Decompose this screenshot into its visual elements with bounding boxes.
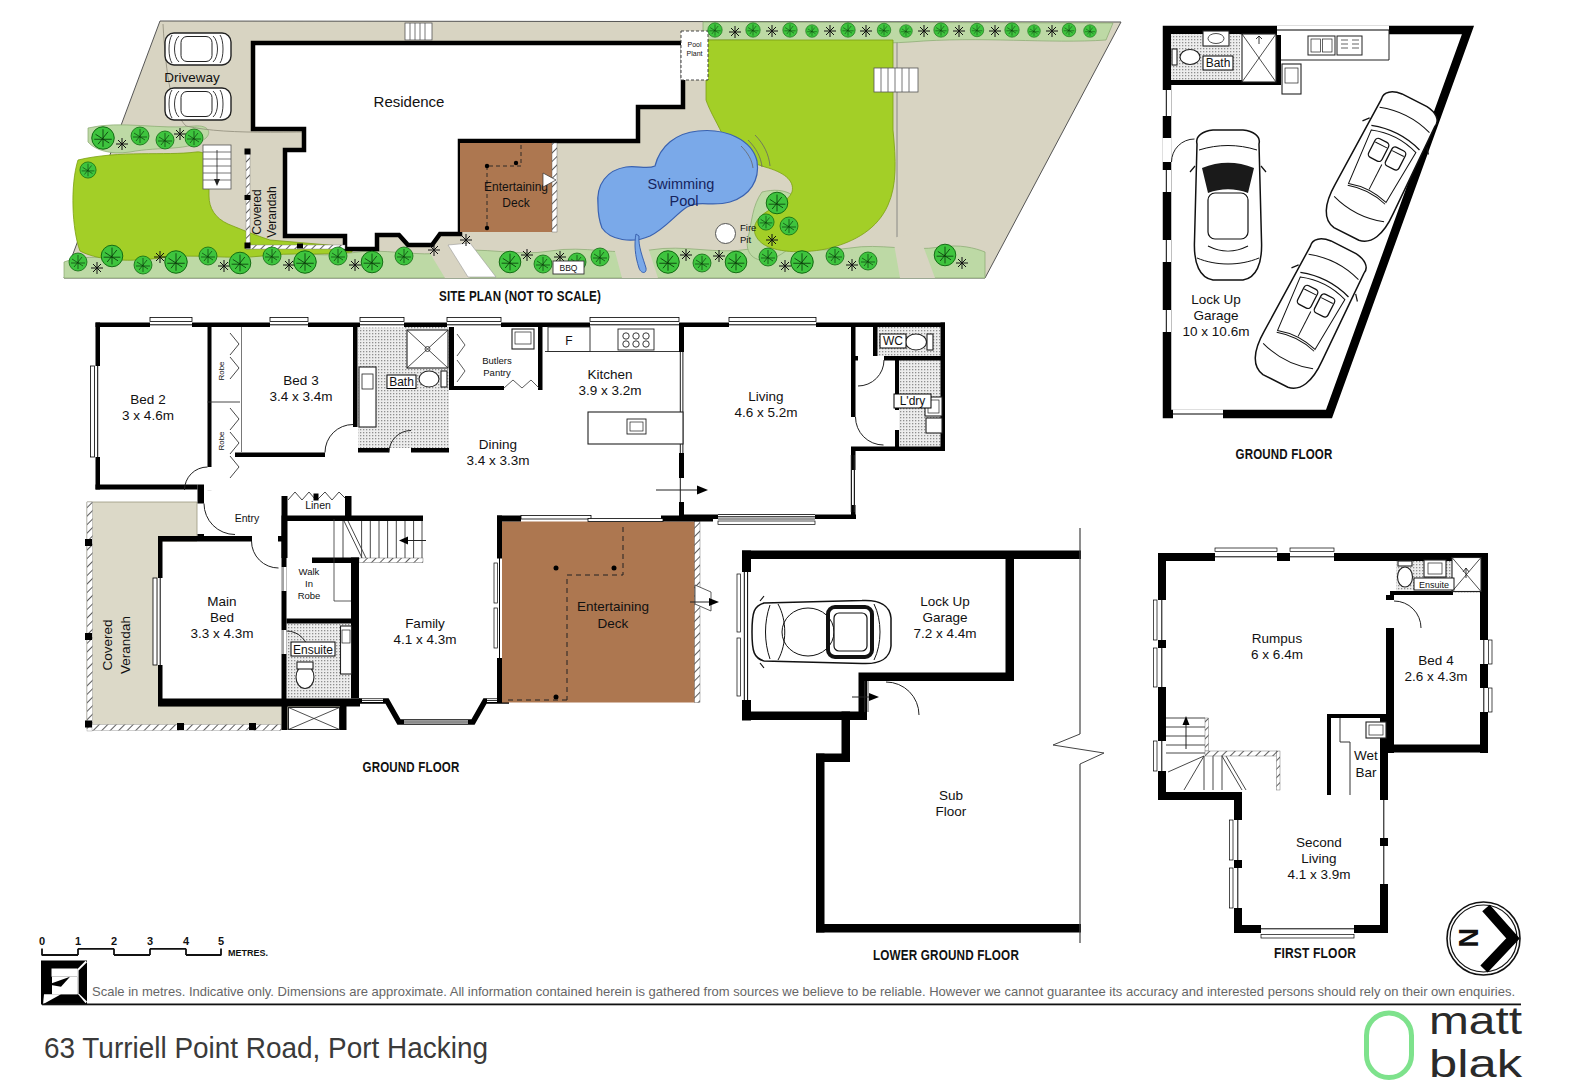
svg-text:Verandah: Verandah bbox=[265, 186, 279, 237]
svg-text:METRES.: METRES. bbox=[228, 948, 268, 958]
svg-text:Garage: Garage bbox=[922, 610, 967, 625]
svg-text:Robe: Robe bbox=[217, 361, 226, 381]
svg-text:Wet: Wet bbox=[1354, 748, 1378, 763]
svg-text:Pool: Pool bbox=[669, 193, 698, 209]
svg-text:Swimming: Swimming bbox=[648, 176, 715, 192]
svg-text:Scale in metres. Indicative on: Scale in metres. Indicative only. Dimens… bbox=[92, 984, 1515, 999]
svg-text:Living: Living bbox=[1301, 851, 1336, 866]
svg-text:63 Turriell Point Road, Port H: 63 Turriell Point Road, Port Hacking bbox=[44, 1031, 488, 1064]
svg-text:4.6 x 5.2m: 4.6 x 5.2m bbox=[734, 405, 797, 420]
svg-text:WC: WC bbox=[883, 334, 903, 348]
svg-text:Bed 4: Bed 4 bbox=[1418, 653, 1454, 668]
svg-text:Garage: Garage bbox=[1193, 308, 1238, 323]
svg-text:L'dry: L'dry bbox=[900, 394, 926, 408]
svg-text:3.9 x 3.2m: 3.9 x 3.2m bbox=[578, 383, 641, 398]
svg-text:5: 5 bbox=[218, 935, 224, 947]
svg-text:6 x 6.4m: 6 x 6.4m bbox=[1251, 647, 1303, 662]
svg-text:Lock Up: Lock Up bbox=[920, 594, 970, 609]
svg-text:Deck: Deck bbox=[598, 616, 629, 631]
svg-text:Bar: Bar bbox=[1355, 765, 1377, 780]
svg-text:Entry: Entry bbox=[235, 512, 260, 524]
svg-text:Bed 2: Bed 2 bbox=[130, 392, 165, 407]
svg-text:Butlers: Butlers bbox=[482, 355, 512, 366]
svg-text:F: F bbox=[565, 334, 572, 348]
svg-text:Linen: Linen bbox=[305, 499, 331, 511]
svg-text:In: In bbox=[305, 578, 313, 589]
svg-text:Second: Second bbox=[1296, 835, 1342, 850]
svg-text:Pool: Pool bbox=[687, 41, 701, 48]
svg-text:3 x 4.6m: 3 x 4.6m bbox=[122, 408, 174, 423]
svg-text:matt: matt bbox=[1429, 1000, 1523, 1042]
svg-text:blak: blak bbox=[1429, 1043, 1523, 1080]
svg-text:10 x 10.6m: 10 x 10.6m bbox=[1183, 324, 1250, 339]
svg-text:Ensuite: Ensuite bbox=[1419, 580, 1449, 590]
svg-text:Living: Living bbox=[748, 389, 783, 404]
svg-text:Walk: Walk bbox=[299, 566, 320, 577]
svg-text:GROUND FLOOR: GROUND FLOOR bbox=[1236, 446, 1333, 462]
svg-text:1: 1 bbox=[75, 935, 81, 947]
svg-text:Driveway: Driveway bbox=[164, 70, 220, 85]
svg-text:Ensuite: Ensuite bbox=[293, 643, 333, 657]
svg-text:SITE PLAN (NOT TO SCALE): SITE PLAN (NOT TO SCALE) bbox=[439, 288, 601, 304]
svg-text:FIRST FLOOR: FIRST FLOOR bbox=[1274, 945, 1356, 961]
svg-text:GROUND FLOOR: GROUND FLOOR bbox=[363, 759, 460, 775]
svg-text:Deck: Deck bbox=[502, 196, 530, 210]
svg-text:3.4 x 3.4m: 3.4 x 3.4m bbox=[269, 389, 332, 404]
svg-text:Lock Up: Lock Up bbox=[1191, 292, 1241, 307]
svg-text:Dining: Dining bbox=[479, 437, 517, 452]
svg-text:Floor: Floor bbox=[936, 804, 967, 819]
svg-text:2: 2 bbox=[111, 935, 117, 947]
svg-text:4: 4 bbox=[183, 935, 190, 947]
svg-text:Bed: Bed bbox=[210, 610, 234, 625]
svg-text:Kitchen: Kitchen bbox=[587, 367, 632, 382]
svg-text:2.6 x 4.3m: 2.6 x 4.3m bbox=[1404, 669, 1467, 684]
svg-text:3.3 x 4.3m: 3.3 x 4.3m bbox=[190, 626, 253, 641]
svg-text:Bath: Bath bbox=[389, 375, 414, 389]
svg-text:7.2 x 4.4m: 7.2 x 4.4m bbox=[913, 626, 976, 641]
svg-text:Bed 3: Bed 3 bbox=[283, 373, 318, 388]
svg-text:Sub: Sub bbox=[939, 788, 963, 803]
svg-text:0: 0 bbox=[39, 935, 45, 947]
svg-text:Verandah: Verandah bbox=[118, 616, 133, 674]
svg-text:BBQ: BBQ bbox=[560, 263, 578, 273]
svg-text:3.4 x 3.3m: 3.4 x 3.3m bbox=[466, 453, 529, 468]
svg-text:Pantry: Pantry bbox=[483, 367, 511, 378]
svg-text:Rumpus: Rumpus bbox=[1252, 631, 1303, 646]
svg-text:Covered: Covered bbox=[100, 619, 115, 670]
svg-text:Entertaining: Entertaining bbox=[577, 599, 649, 614]
svg-text:Main: Main bbox=[207, 594, 236, 609]
svg-text:N: N bbox=[1453, 928, 1483, 948]
svg-text:Plant: Plant bbox=[687, 50, 703, 57]
svg-text:Fire: Fire bbox=[740, 222, 756, 233]
svg-text:4.1 x 3.9m: 4.1 x 3.9m bbox=[1287, 867, 1350, 882]
svg-text:Robe: Robe bbox=[298, 590, 321, 601]
svg-text:Family: Family bbox=[405, 616, 445, 631]
svg-text:Entertaining: Entertaining bbox=[484, 180, 548, 194]
svg-text:Residence: Residence bbox=[374, 93, 445, 110]
svg-text:Covered: Covered bbox=[250, 189, 264, 234]
svg-text:Robe: Robe bbox=[217, 431, 226, 451]
svg-text:4.1 x 4.3m: 4.1 x 4.3m bbox=[393, 632, 456, 647]
svg-text:Bath: Bath bbox=[1206, 56, 1231, 70]
svg-text:Pit: Pit bbox=[740, 234, 751, 245]
svg-text:3: 3 bbox=[147, 935, 153, 947]
svg-text:LOWER GROUND FLOOR: LOWER GROUND FLOOR bbox=[873, 947, 1019, 963]
